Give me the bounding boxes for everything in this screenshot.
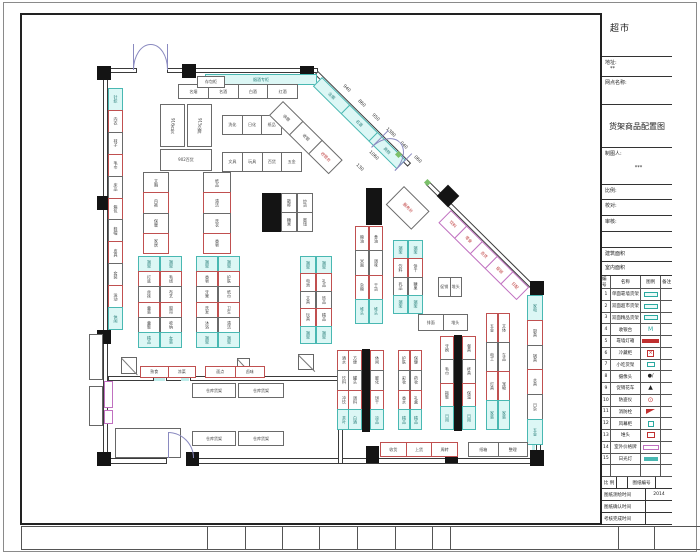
legend-row: 2双面超市货架 [602,301,672,313]
shelf-run: 端架饮料乳品端架 [393,240,408,314]
shelf-label: 凉品 [375,416,379,424]
legend-header-row: 编号名称图例备注 [602,276,672,289]
shelf-label: 零食 [464,236,472,244]
shelf-label: 牙膏 [205,290,209,298]
shelf-label: 炒货 [303,199,307,207]
shelf-cell: 端架 [196,256,218,272]
shelf-label: 五金 [490,324,494,332]
shelf-cell: 内衣 [108,110,123,133]
fixture-box [89,386,103,426]
wall [190,458,540,464]
shelf-run: 文具玩具百货五金 [222,152,302,172]
shelf-label: 白酒 [249,90,257,94]
shelf-cell: 红酒 [267,84,298,99]
shelf-label: 散称 [287,199,291,207]
shelf-label: 香皂 [215,239,219,247]
shelf-cell: 日用 [440,406,454,430]
shelf-cell: 纸品 [203,172,231,193]
shelf-label: 粮油 [360,235,364,243]
shelf-cell: 布艺 [160,286,182,302]
drafter-cell: 制图人: *** [602,148,672,185]
legend-symbol-cell [641,430,661,441]
footer-value [646,513,672,524]
shelf-label: 902百货 [178,158,194,162]
shelf-cell: 家电 [527,295,543,321]
shelf-cell: 糖果 [281,212,297,232]
shelf-cell: 保暖 [143,213,169,234]
shelf-label: 厨具 [533,329,537,337]
legend-header-cell: 备注 [661,276,672,288]
shelf-cell: 仓库货架 [238,383,284,398]
legend-row: 15日光灯 [602,454,672,466]
structural-column [530,281,544,295]
shelf-label: 车品 [502,353,506,361]
legend-name: 促销花车 [611,383,641,394]
shelf-cell: 宠物 [498,371,510,401]
tealsm-legend-icon [647,362,655,367]
shelf-cell: 面点 [205,366,236,378]
shelf-label: 端架 [322,261,326,269]
shelf-label: 电工 [490,353,494,361]
dimension-label: 860 [356,99,366,109]
shelf-cell: 堆头 [450,277,463,297]
shelf-cell: 家装 [498,400,510,430]
shelf-label: 香水 [402,396,406,404]
legend-no: 7 [602,360,611,371]
shelf-label: 端架 [147,260,151,268]
signature-strip [21,526,700,550]
legend-note [661,383,672,394]
shelf-label: 存包柜 [205,80,217,84]
shelf-label: 护肤 [402,356,406,364]
shelf-cell: 袜子 [108,132,123,155]
legend-note [661,289,672,300]
signature-cell [619,526,655,550]
footer-row: 图纸测绘时间2014 [602,489,672,501]
footer-label: 图纸测绘时间 [602,489,646,500]
double-door [133,44,168,70]
footer-value: 2014 [646,489,672,500]
shelf-cell: 电工 [486,342,498,372]
legend-note [661,465,672,476]
shelf-label: 保温 [467,391,471,399]
shelf-cell: 家装 [486,400,498,430]
shelf-cell: 炒货 [297,193,313,213]
shelf-label: 饰品 [322,296,326,304]
fixture-box [104,381,113,408]
dimension-label: 130 [354,163,364,173]
shelf-label: 百货 [268,160,276,164]
shelf-cell: 精品 [138,332,160,348]
signature-cell [320,526,358,550]
shelf-run: 纸品清洁洗衣香皂 [203,172,231,254]
shelf-cell: 堆头 [369,299,383,324]
shelf-run: 纸箱整理 [468,442,528,457]
legend-name: 消防栓 [611,407,641,418]
shelf-cell: 家居 [143,233,169,254]
shelf-label: 礼品 [322,279,326,287]
shelf-cell: 周转 [431,442,458,457]
shelf-label: 熟食 [150,370,158,374]
legend-note [661,442,672,453]
legend-symbol-cell [641,336,661,347]
legend-no: 13 [602,430,611,441]
shelf-cell: 端架 [316,256,332,274]
shelf-label: 文体 [502,324,506,332]
shelf-cell: 窗帘 [160,302,182,318]
structural-column [97,452,111,466]
legend-symbol-cell: ●/ [641,371,661,382]
shelf-cell: 端架 [393,295,408,314]
shelf-label: 彩妆 [402,376,406,384]
crossed-fixture-box [121,357,137,374]
tealrect-legend-icon [644,315,658,320]
legend-header-cell: 编号 [602,276,611,288]
shelf-label: 香皂 [205,275,209,283]
info-rows: 比例:校对:审核:建筑面积室内面积 [602,185,672,276]
site-name-label: 网点名称: [605,80,627,86]
shelf-label: 童鞋 [147,321,151,329]
shelf-label: 端架 [205,260,209,268]
shelf-cell: 仓库货架 [238,431,284,446]
shelf-cell: 散称 [281,193,297,213]
legend-name: 冷藏柜 [611,348,641,359]
shelf-label: 袜子 [114,139,118,147]
shelf-cell: 洗化 [222,115,243,135]
footer-label: 图纸确认时间 [602,501,646,512]
shelf-run: 端架香皂牙膏洗发沐浴端架 [196,256,218,348]
scale-number-row: 比 例 图纸编号 [602,477,672,489]
shelf-cell: 床品 [108,176,123,199]
shelf-cell: 五金 [486,313,498,343]
shelf-cell: 护肤 [398,350,410,371]
shelf-run: 收货上货周转 [380,442,458,457]
shelf-cell: 端架 [138,256,160,272]
signature-cell [283,526,320,550]
shelf-label: 家居 [154,239,158,247]
legend-row: 9促销花车▲ [602,383,672,395]
shelf-label: 文具 [306,296,310,304]
shelf-label: 保健 [414,356,418,364]
shelf-label: 调料 [353,396,357,404]
legend-name: 单面靠墙货架 [611,289,641,300]
legend-no: 15 [602,454,611,465]
shelf-run: 促销堆头 [438,277,462,297]
shelf-label: 杯具 [467,367,471,375]
shelf-cell: 餐具 [462,336,476,360]
shelf-cell: 堆头 [355,299,369,324]
signature-cell [21,526,208,550]
shelf-label: 收货 [389,448,397,452]
redbox-legend-icon [647,432,655,438]
shelf-cell: 调料 [348,390,362,411]
shelf-label: 五金 [533,428,537,436]
legend-no [602,465,611,476]
shelf-cell: 端架 [316,326,332,344]
shelf-label: 精品 [322,313,326,321]
shelf-label: 端架 [414,300,418,308]
shelf-label: 纸品 [268,123,276,127]
legend-symbol-cell: × [641,348,661,359]
legend-note [661,324,672,335]
legend-symbol-cell [641,360,661,371]
shelf-cell: 纸箱 [468,442,499,457]
shelf-label: 丝袜 [147,290,151,298]
shelf-cell: 毛巾 [108,154,123,177]
shelf-cell: 上货 [406,442,433,457]
footer-value [646,501,672,512]
shelf-cell: 卤味 [235,366,266,378]
address-cell: 地址: ** [602,57,672,77]
signature-cell [655,526,700,550]
shelf-cell: 沐浴 [196,317,218,333]
shelf-label: 布艺 [169,290,173,298]
legend-no: 10 [602,395,611,406]
shelf-label: 食油 [374,235,378,243]
tealbar-legend-icon [644,457,658,461]
shelf-run: 服务台 [386,186,430,230]
shelf-label: 精品 [147,336,151,344]
info-row: 审核: [602,216,672,232]
info-row: 室内面积 [602,262,672,276]
legend-symbol-cell [641,465,661,476]
shelf-label: 杂粮 [360,283,364,291]
shelf-run: 护肤彩妆香水精品 [398,350,410,430]
shelf-cell: 蜜饯 [297,212,313,232]
shelf-cell: 电池 [300,273,316,291]
shelf-cell: 洗发 [196,302,218,318]
legend-table: 编号名称图例备注1单面靠墙货架2双面超市货架3双面精品货架4收银台M5靠墙灯箱6… [602,276,672,477]
legend-symbol-cell [641,442,661,453]
structural-column [437,185,460,208]
door-arc [151,44,169,70]
shelf-label: 精品 [414,416,418,424]
floor-plan: 烟酒专柜名烟名酒白酒红酒916百货915品牌902百货洗化日化纸品文具玩具百货五… [0,0,700,555]
shelf-cell: 端架 [393,240,408,259]
shelf-label: 饼干 [414,264,418,272]
shelf-label: 茶叶 [342,416,346,424]
shelf-cell: 饮料 [393,258,408,277]
legend-row: 1单面靠墙货架 [602,289,672,301]
shelf-cell: 饰品 [316,291,332,309]
legend-name: 摄像头 [611,371,641,382]
shelf-label: 家电 [533,304,537,312]
shelf-label: 针织 [114,95,118,103]
shelf-cell: 童装 [138,302,160,318]
shelf-cell: 902百货 [160,149,212,171]
structural-column [366,446,379,463]
legend-symbol-cell [641,289,661,300]
shelf-label: 仓库货架 [253,437,269,441]
shelf-label: 整理 [509,448,517,452]
info-row: 比例: [602,185,672,200]
shelf-cell: 饼干 [408,258,423,277]
footer-row: 考核完成时间 [602,513,672,525]
fixture-box [89,334,103,380]
shelf-run: 休闲膨化饼干凉品 [370,350,384,430]
number-value [656,477,672,489]
legend-name [611,465,641,476]
shelf-cell: 五金 [527,419,543,445]
shelf-label: 端架 [414,246,418,254]
shelf-cell: 熟食 [140,366,169,378]
legend-row: 11消防栓 [602,407,672,419]
shelf-label: 收银 [282,114,290,122]
shelf-cell: 日用 [462,406,476,430]
shelf-label: 堆头 [451,321,459,325]
shelf-label: 洗化 [228,123,236,127]
shelf-label: 端架 [306,331,310,339]
shelf-run: 端架电池文具玩具端架 [300,256,316,344]
shelf-cell: 白酒 [348,409,362,430]
shelf-label: 运动 [114,293,118,301]
shelf-cell: 杂粮 [355,275,369,300]
legend-symbol-cell [641,407,661,418]
shelf-label: 玩具 [306,313,310,321]
shelf-cell: 内裤 [143,192,169,213]
shelf-label: 锅具 [533,354,537,362]
shelf-label: 鞋帽 [114,227,118,235]
legend-name: 室外价格牌 [611,442,641,453]
shelf-cell: 端架 [408,240,423,259]
shelf-cell: 保健 [410,350,422,371]
legend-no: 11 [602,407,611,418]
gondola-end-block [362,349,370,432]
shelf-cell: 调味 [369,250,383,275]
shelf-cell: 文胸 [143,172,169,193]
shelf-label: 冲饮 [342,396,346,404]
shelf-label: 童装 [147,306,151,314]
shelf-label: 毛巾 [445,367,449,375]
redx-legend-icon: × [647,350,654,357]
legend-header-cell: 名称 [611,276,641,288]
shelf-label: 米面 [360,259,364,267]
shelf-label: 端架 [205,336,209,344]
shelf-cell: 香皂 [196,271,218,287]
shelf-cell: 整理 [498,442,529,457]
shelf-label: 服务台 [402,202,413,213]
redcircle-legend-icon: ⊙ [648,397,654,404]
shelf-label: 卤味 [246,370,254,374]
shelf-label: 窗帘 [169,306,173,314]
shelf-run: 端架打底丝袜童装童鞋精品 [138,256,160,348]
shelf-cell: 粮油 [355,226,369,251]
shelf-label: 仓库货架 [206,437,222,441]
shelf-label: 玩具 [248,160,256,164]
shelf-cell: 鞋帽 [108,219,123,242]
shelf-cell: 清洁 [203,192,231,213]
shelf-run: 五金电工灯具家装 [486,313,498,430]
shelf-cell: 锅具 [527,345,543,371]
shelf-label: 膨化 [375,376,379,384]
shelf-cell: 存包柜 [197,76,225,88]
scale-value [617,477,628,489]
shelf-run: 牙刷毛巾拖鞋日用 [440,336,454,430]
shelf-label: 灯具 [490,382,494,390]
shelf-run: 熟食凉菜 [140,366,196,378]
legend-name: 双面精品货架 [611,313,641,324]
shelf-run: 916百货 [160,104,185,147]
shelf-cell: 百货 [262,152,283,172]
shelf-run: 针织内衣袜子毛巾床品箱包鞋帽皮具女装运动休闲 [108,88,123,330]
redflag-legend-icon [646,409,655,414]
shelf-cell: 收纳 [160,317,182,333]
wall [103,458,167,464]
door-leaf [133,44,134,70]
shelf-label: 方便 [353,356,357,364]
shelf-cell: 仓库货架 [192,431,236,446]
legend-row: 10防盗仪⊙ [602,395,672,407]
shelf-label: 端架 [227,260,231,268]
shelf-cell: 玩具 [242,152,263,172]
shelf-label: 水具 [533,378,537,386]
shelf-label: 清洁 [215,199,219,207]
tealrect-legend-icon [644,292,658,297]
shelf-cell: 护肤 [218,271,240,287]
shelf-label: 纸品 [215,179,219,187]
legend-symbol-cell [641,313,661,324]
shelf-run: 餐具杯具保温日用 [462,336,476,430]
shelf-label: 红酒 [279,90,287,94]
shelf-label: 护肤 [227,275,231,283]
shelf-label: 休闲 [375,356,379,364]
structural-column [97,66,111,80]
shelf-cell: 药妆 [410,370,422,391]
tri-legend-icon: ▲ [648,385,653,391]
shelf-cell: 文具 [300,291,316,309]
shelf-label: 电池 [306,279,310,287]
scale-label: 比 例 [602,477,617,489]
shelf-cell: 罐头 [348,370,362,391]
shelf-cell: 针织 [108,88,123,111]
number-label: 图纸编号 [628,477,656,489]
legend-name: 双面超市货架 [611,301,641,312]
shelf-run: 保健药妆礼盒精品 [410,350,422,430]
legend-note [661,395,672,406]
legend-note [661,430,672,441]
shelf-label: 日杂 [533,403,537,411]
drafter-value: *** [605,165,672,171]
shelf-cell: 服务台 [386,186,430,230]
shelf-run: 端架饼干糖果端架 [408,240,423,314]
shelf-label: 文具 [228,160,236,164]
structural-column [530,450,544,466]
legend-row: 4收银台M [602,324,672,336]
legend-row: 8摄像头●/ [602,371,672,383]
shelf-run: 端架礼品饰品精品端架 [316,256,332,344]
shelf-cell: 丝袜 [138,286,160,302]
legend-row [602,465,672,477]
shelf-label: 皮具 [114,249,118,257]
shelf-run: 家电厨具锅具水具日杂五金 [527,295,543,445]
shelf-label: 洗发 [205,306,209,314]
shelf-cell: 凉品 [370,409,384,430]
shelf-label: 家装 [502,411,506,419]
legend-symbol-cell [641,301,661,312]
shelf-label: 仓库货架 [206,389,222,393]
shelf-cell: 杯具 [462,359,476,383]
shelf-cell: 端架 [408,295,423,314]
shelf-label: 牙刷 [445,344,449,352]
shelf-cell: 精品 [410,409,422,430]
shelf-run: 端架毛线布艺窗帘收纳女装 [160,256,182,348]
shelf-label: 名烟 [189,90,197,94]
legend-name: 风幕柜 [611,418,641,429]
shelf-label: 床品 [114,183,118,191]
dimension-label: 060 [412,155,422,165]
shelf-cell: 米面 [355,250,369,275]
footer-label: 考核完成时间 [602,513,646,524]
